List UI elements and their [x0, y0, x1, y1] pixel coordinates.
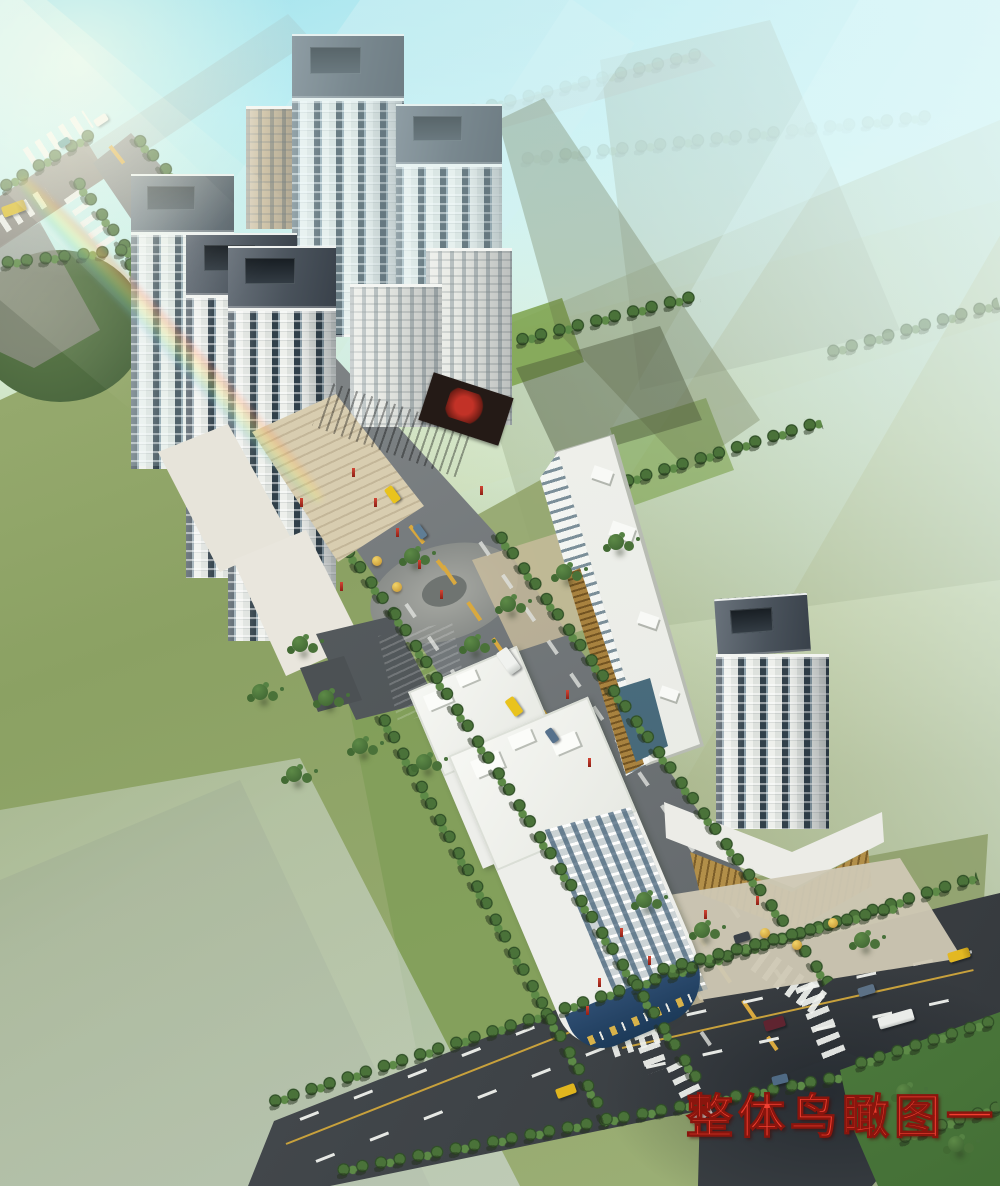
tower-facade: [716, 654, 829, 829]
red-banner: [440, 590, 443, 599]
tree-clump: [416, 754, 432, 770]
tree-clump: [608, 534, 624, 550]
red-banner: [704, 910, 707, 919]
tree-clump: [464, 636, 480, 652]
plaza-umbrella: [760, 928, 770, 938]
tree-clump: [352, 738, 368, 754]
tree-clump: [854, 932, 870, 948]
plaza-umbrella: [792, 940, 802, 950]
caption-text: 整体鸟瞰图一: [686, 1094, 998, 1141]
plaza-umbrella: [372, 556, 382, 566]
red-banner: [566, 690, 569, 699]
red-banner: [756, 896, 759, 905]
billboard-graphic: [443, 386, 489, 427]
tree-clump: [500, 596, 516, 612]
right-highrise-tower: [716, 596, 829, 826]
red-banner: [480, 486, 483, 495]
red-banner: [396, 528, 399, 537]
tower-crown: [714, 593, 810, 657]
tree-clump: [636, 892, 652, 908]
red-banner: [300, 498, 303, 507]
tree-clump: [694, 922, 710, 938]
tree-clump: [318, 690, 334, 706]
aerial-rendering-canvas: 整体鸟瞰图一: [0, 0, 1000, 1186]
plaza-umbrella: [392, 582, 402, 592]
red-banner: [418, 560, 421, 569]
red-banner: [598, 978, 601, 987]
red-banner: [586, 1006, 589, 1015]
tree-clump: [292, 636, 308, 652]
red-banner: [588, 758, 591, 767]
red-banner: [648, 956, 651, 965]
tree-clump: [286, 766, 302, 782]
red-banner: [620, 928, 623, 937]
roof-vent: [730, 607, 774, 634]
red-banner: [374, 498, 377, 507]
plaza-umbrella: [828, 918, 838, 928]
tree-clump: [556, 564, 572, 580]
red-banner: [340, 582, 343, 591]
red-banner: [352, 468, 355, 477]
tree-clump: [252, 684, 268, 700]
